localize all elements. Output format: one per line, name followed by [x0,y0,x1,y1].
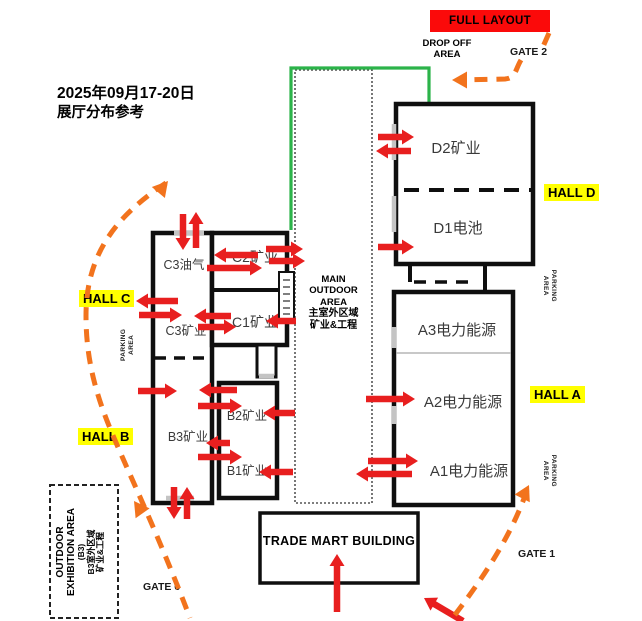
parking-area-label-south: PARKING AREA [541,445,557,497]
zone-c1: C1矿业 [226,312,284,332]
zone-b3: B3矿业 [160,426,216,445]
gate-2-label: GATE 2 [510,46,547,58]
parking-area-label-north: PARKING AREA [541,260,557,312]
zone-a2: A2电力能源 [411,391,515,412]
d-a-connector-walls [410,264,485,292]
zone-a3: A3电力能源 [405,319,509,340]
outdoor-exhibition-area-label: OUTDOOR EXHIBITION AREA (B3) B3室外区域 矿业&工… [55,487,113,617]
zone-c2: C2矿业 [226,247,284,267]
parking-area-label-west: PARKING AREA [120,319,136,371]
zone-c3-mining: C3矿业 [158,320,214,339]
zone-b1: B1矿业 [220,460,274,479]
full-layout-label: FULL LAYOUT [449,15,531,27]
main-outdoor-area-label: MAIN OUTDOOR AREA 主室外区域 矿业&工程 [295,274,372,332]
plan-subtitle: 展厅分布参考 [57,104,195,123]
hall-c-badge: HALL C [79,290,134,307]
plan-date: 2025年09月17-20日 [57,84,195,104]
hall-d-building [396,104,533,264]
zone-c3-oil: C3油气 [156,254,212,273]
hall-a-badge: HALL A [530,386,585,403]
zone-d2: D2矿业 [410,137,502,158]
hall-d-badge: HALL D [544,184,599,201]
c3-b3-building [153,233,212,503]
hall-b-badge: HALL B [78,428,133,445]
c1-annex [257,345,276,377]
full-layout-banner: FULL LAYOUT [430,10,550,32]
b2-b1-building [219,383,277,498]
zone-a1: A1电力能源 [417,460,521,481]
zone-d1: D1电池 [412,217,504,238]
drop-off-area-label: DROP OFF AREA [412,39,482,61]
trade-mart-label: TRADE MART BUILDING [262,534,416,548]
plan-title: 2025年09月17-20日 展厅分布参考 [57,84,195,123]
gate-1-label: GATE 1 [518,548,555,560]
zone-b2: B2矿业 [220,405,274,424]
trade-mart-building-outline [260,513,418,583]
floor-plan-page: { "meta": { "title_line1": "2025年09月17-2… [0,0,642,621]
gate-6-label: GATE 6 [143,581,180,593]
